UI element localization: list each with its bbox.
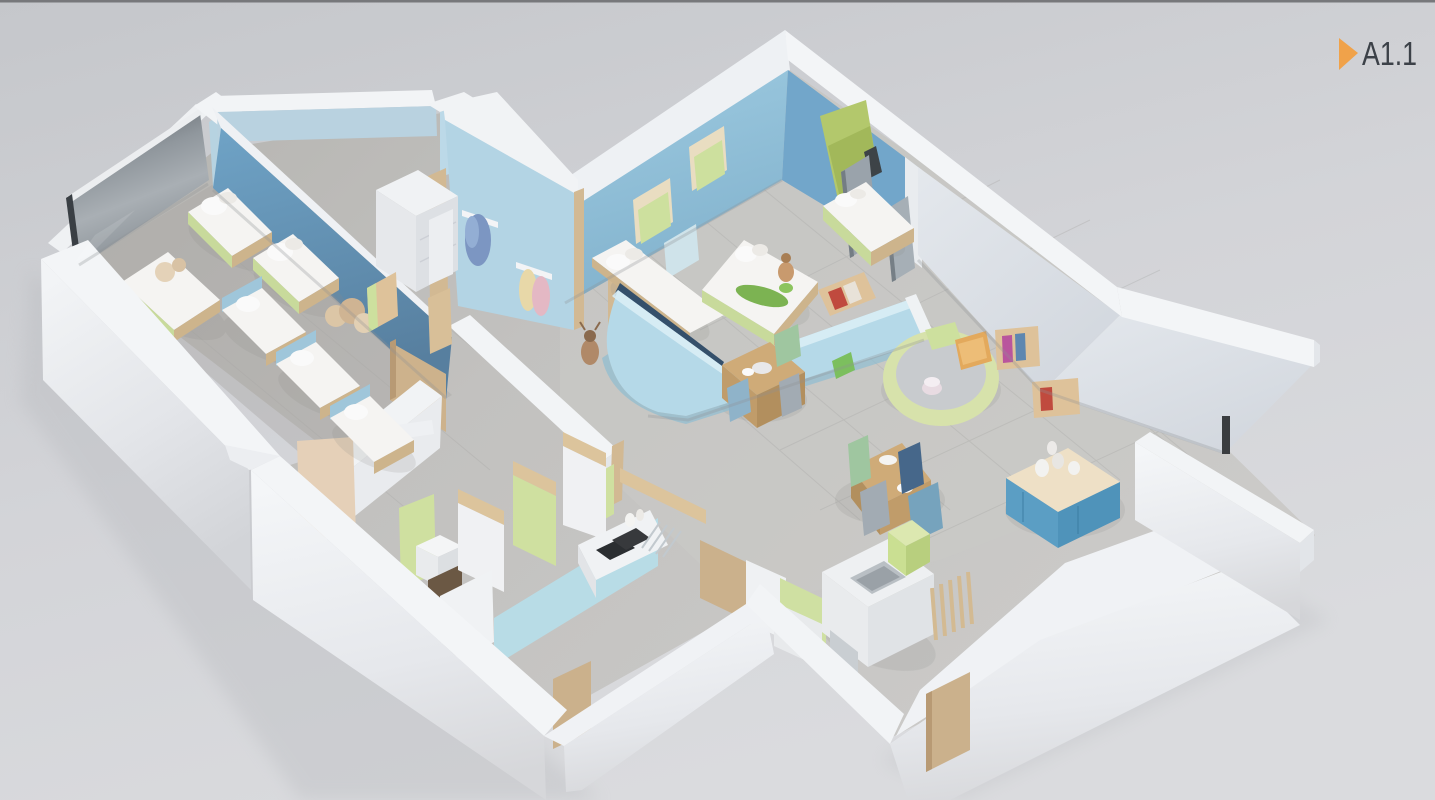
svg-text:A1.1: A1.1 bbox=[1362, 35, 1417, 72]
